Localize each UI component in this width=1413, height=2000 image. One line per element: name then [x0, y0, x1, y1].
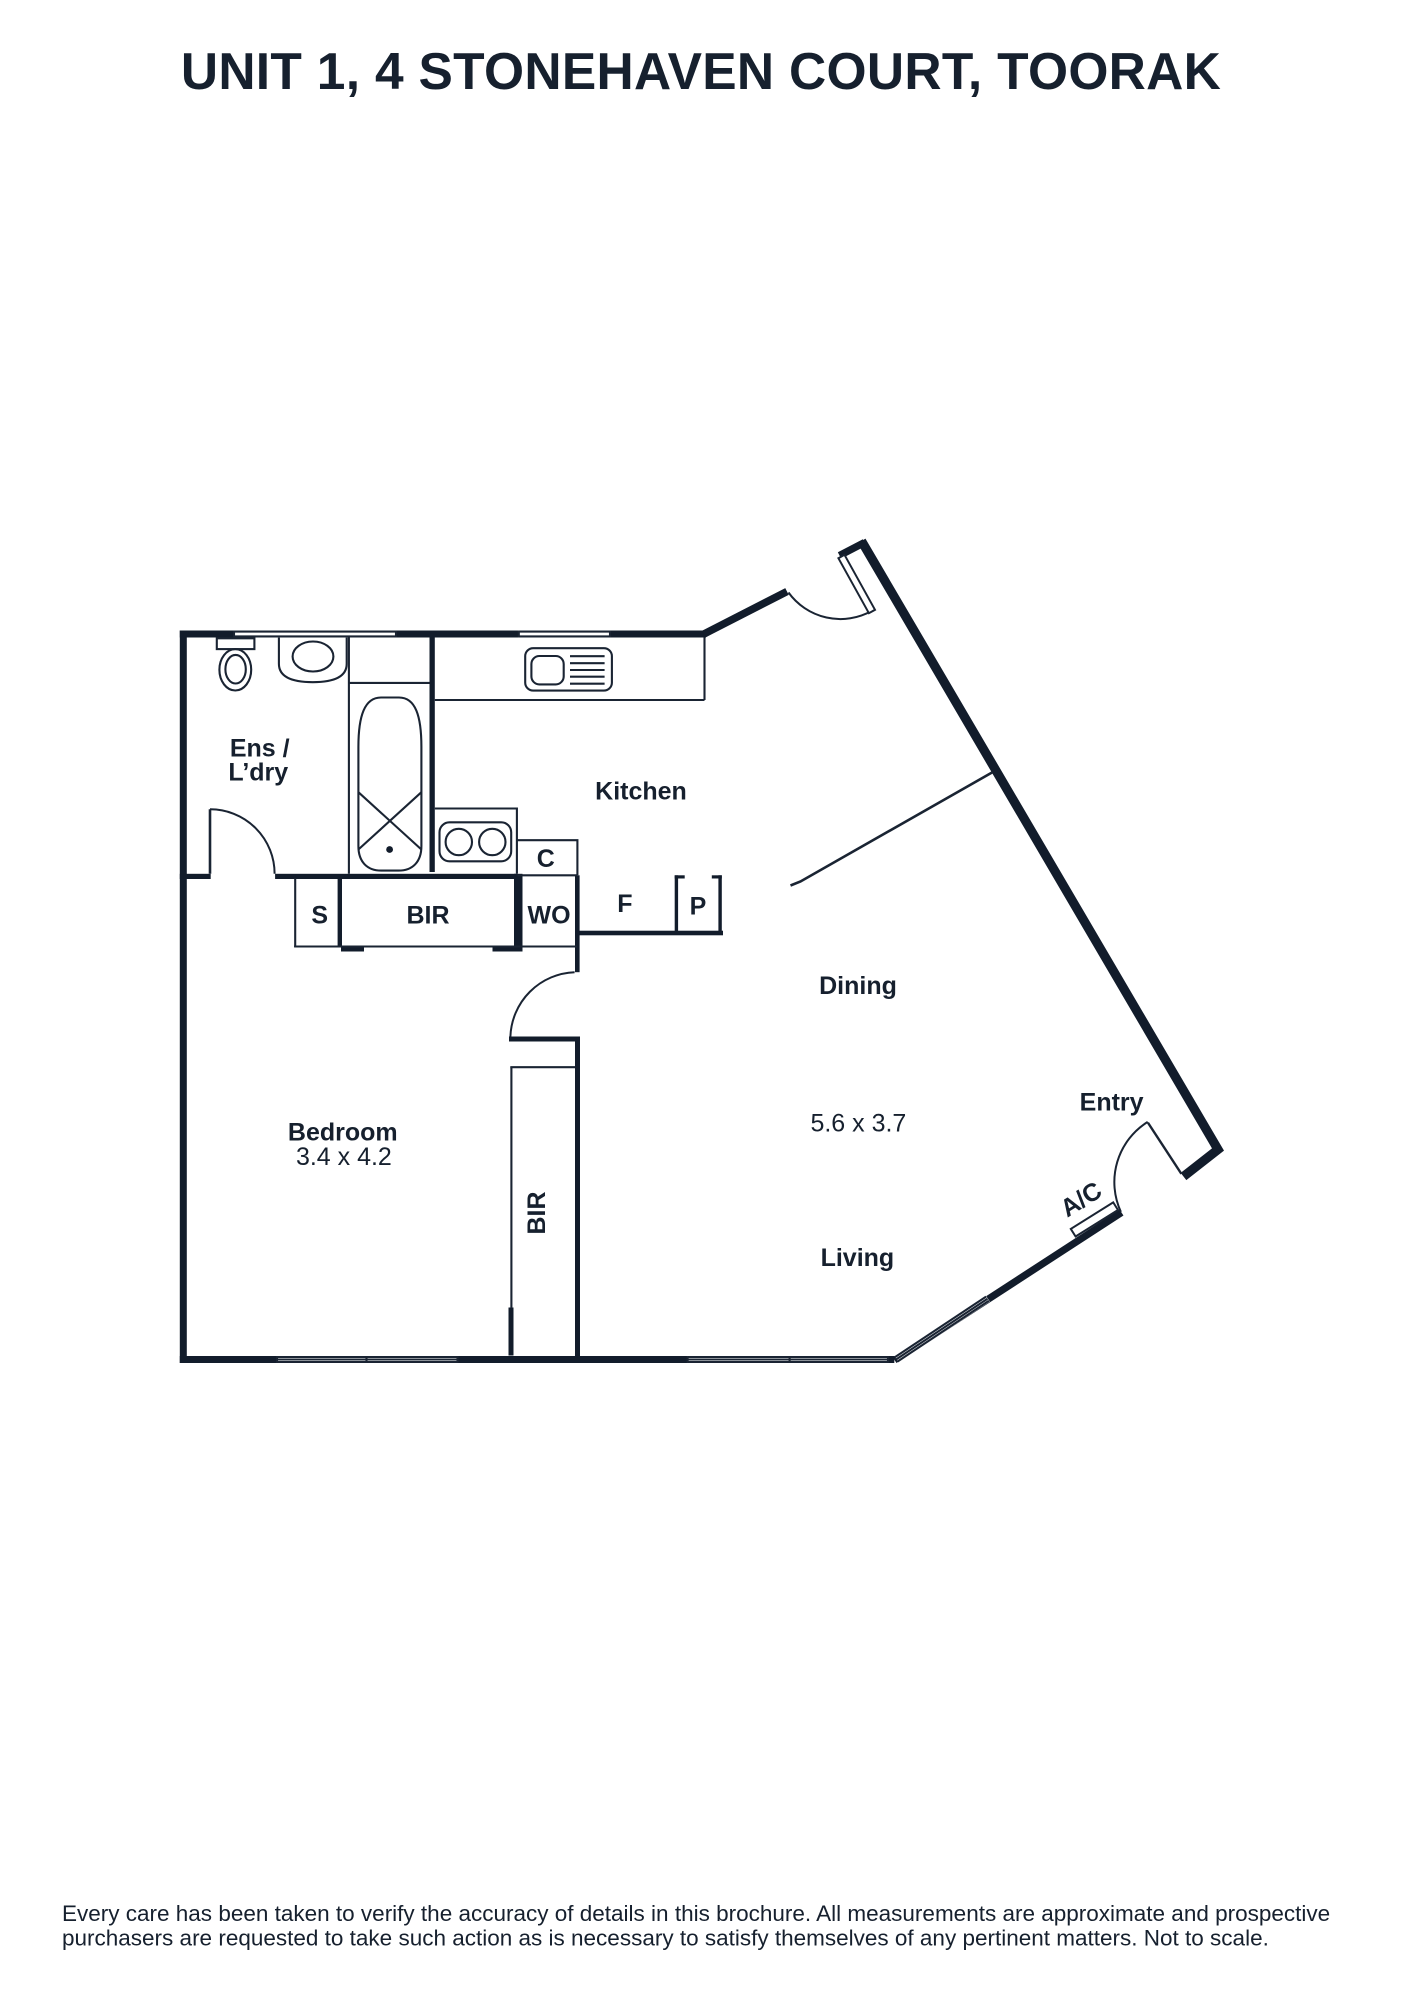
- svg-text:P: P: [690, 892, 707, 920]
- svg-text:5.6 x 3.7: 5.6 x 3.7: [810, 1110, 906, 1138]
- svg-text:F: F: [617, 890, 632, 918]
- svg-text:Kitchen: Kitchen: [595, 778, 687, 806]
- svg-text:S: S: [311, 902, 328, 930]
- svg-text:Living: Living: [821, 1244, 895, 1272]
- svg-text:BIR: BIR: [523, 1191, 551, 1234]
- svg-text:Every care has been taken to v: Every care has been taken to verify the …: [62, 1901, 1330, 1926]
- svg-text:3.4 x 4.2: 3.4 x 4.2: [296, 1143, 392, 1171]
- svg-text:WO: WO: [527, 902, 570, 930]
- svg-text:purchasers are requested to ta: purchasers are requested to take such ac…: [62, 1926, 1269, 1951]
- svg-text:C: C: [537, 845, 555, 873]
- svg-text:Dining: Dining: [819, 972, 897, 1000]
- svg-text:Entry: Entry: [1080, 1088, 1144, 1116]
- svg-text:L’dry: L’dry: [228, 759, 288, 787]
- svg-text:BIR: BIR: [406, 902, 449, 930]
- svg-text:UNIT 1, 4 STONEHAVEN COURT, TO: UNIT 1, 4 STONEHAVEN COURT, TOORAK: [181, 42, 1221, 100]
